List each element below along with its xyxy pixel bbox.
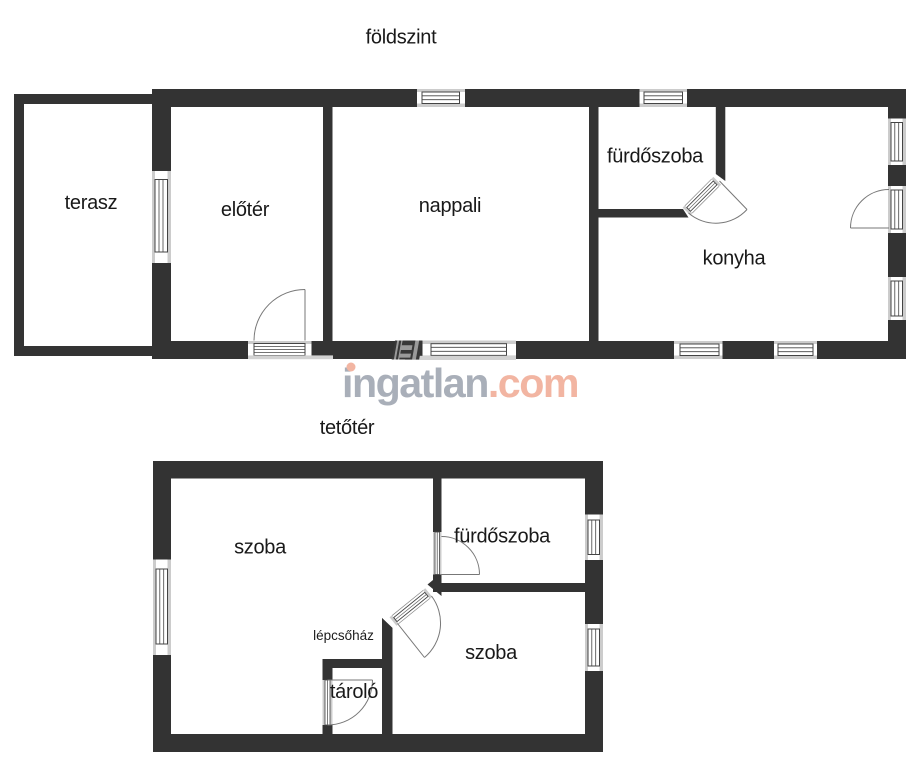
svg-text:konyha: konyha [703,248,767,270]
svg-text:földszint: földszint [366,27,437,49]
svg-text:fürdőszoba: fürdőszoba [454,526,551,548]
svg-text:előtér: előtér [221,199,270,221]
svg-text:szoba: szoba [465,642,518,664]
svg-text:terasz: terasz [65,192,118,214]
svg-text:ingatlan.com: ingatlan.com [342,360,578,406]
svg-text:szoba: szoba [234,537,287,559]
svg-text:tároló: tároló [330,681,378,703]
svg-text:tetőtér: tetőtér [320,417,375,439]
svg-text:nappali: nappali [419,195,481,217]
svg-text:lépcsőház: lépcsőház [313,628,374,643]
svg-text:fürdőszoba: fürdőszoba [607,146,704,168]
